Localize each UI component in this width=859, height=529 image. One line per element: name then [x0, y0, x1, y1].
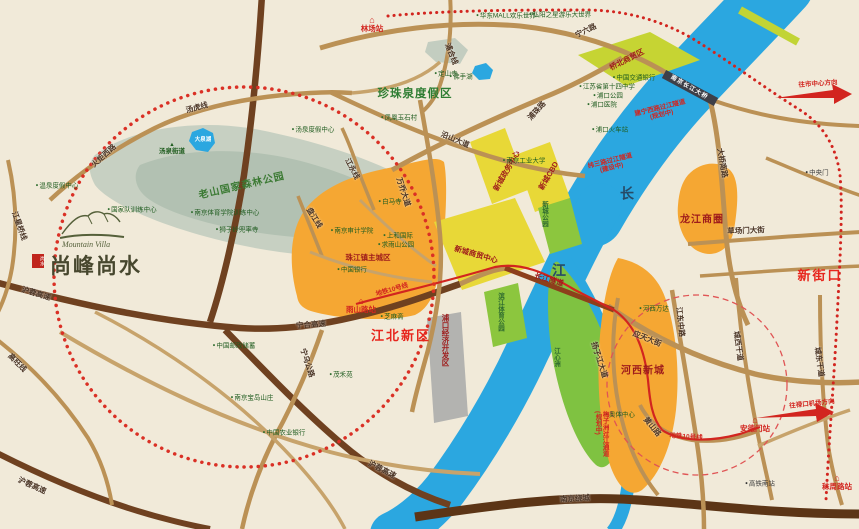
poi-dot-icon: ●: [745, 482, 748, 487]
road-hurong-2: 沪蓉高速: [367, 460, 397, 481]
poi-dot-icon: ●: [331, 229, 334, 234]
poi-zhimazhai: ●芝麻斋: [380, 313, 403, 320]
poi-shisi-zhongxue: ●江苏省第十四中学: [579, 83, 635, 90]
poi-dot-icon: ●: [231, 396, 234, 401]
road-yanshandadao: 沿山大道: [440, 130, 471, 149]
poi-dot-icon: ●: [292, 128, 295, 133]
region-xincheng-cbd: 新城CBD: [538, 160, 561, 191]
road-puzhulu: 浦珠路: [526, 100, 547, 122]
river-char-chang: 长: [620, 186, 634, 201]
poi-dot-icon: ●: [587, 103, 590, 108]
island-jiangxinzhou: 江心洲: [552, 347, 559, 367]
bridge-changjiang-daqiao: 南京长江大桥: [669, 75, 709, 102]
region-xincheng-shangmao: 新城商贸中心: [453, 245, 498, 265]
station-andemen: ⌂安德门站: [740, 416, 770, 433]
poi-tangquan-dujia: ●汤泉度假中心: [292, 126, 335, 133]
region-hexi-xincheng: 河西新城: [621, 367, 665, 378]
poi-foshouhu: ●佛手湖: [449, 73, 472, 80]
poi-dot-icon: ●: [613, 76, 616, 81]
road-panjiangxian: 盘江线: [305, 206, 324, 229]
poi-maoheyuan: ●茂禾苑: [329, 371, 352, 378]
poi-dot-icon: ●: [579, 85, 582, 90]
poi-zhongyangmen: ●中央门: [805, 169, 828, 176]
road-yangzijiangdadao: 扬子江大道: [589, 341, 608, 379]
poi-dot-icon: ●: [592, 128, 595, 133]
poi-shanghe-guoji: ●上和国际: [383, 232, 413, 239]
road-hurong-3: 沪蓉高速: [17, 476, 48, 496]
poi-dot-icon: ●: [383, 234, 386, 239]
region-longjiang: 龙江商圈: [680, 216, 724, 227]
poi-dot-icon: ●: [381, 116, 384, 121]
poi-dot-icon: ●: [378, 243, 381, 248]
crossing-jianning: 建宁西路过江隧道(规划中): [632, 98, 690, 126]
poi-jiaotong-yinhang: ●中国交通银行: [613, 74, 656, 81]
river-char-jiang: 江: [552, 263, 566, 278]
poi-hongyang: ●弘阳之星游乐大世界: [529, 11, 591, 18]
road-jiangdongzhonglu: 江东中路: [674, 307, 685, 338]
poi-dot-icon: ●: [191, 211, 194, 216]
road-huojuxilu: 火炬西路: [90, 143, 118, 169]
mountain-logo-icon: [58, 208, 128, 240]
region-laoshan-park: 老山国家森林公园: [198, 172, 286, 202]
road-tanghuxian: 汤虎线: [185, 101, 209, 115]
poi-qiuyushan-park: ●求雨山公园: [378, 241, 414, 248]
road-ninghe-expwy: 宁合高速: [296, 320, 326, 330]
poi-dot-icon: ●: [639, 307, 642, 312]
road-ningliulu: 宁六路: [574, 22, 598, 39]
poi-dot-icon: ●: [263, 431, 266, 436]
poi-dot-icon: ●: [380, 315, 383, 320]
project-logo: Mountain Villa 尚峰尚水 尚水: [24, 206, 164, 301]
poi-youzheng-chuxu: ●中国邮政储蓄: [213, 342, 256, 349]
poi-dot-icon: ●: [593, 94, 596, 99]
poi-pukou-yiyuan: ●浦口医院: [587, 101, 617, 108]
road-daqiaonanlu: 大桥南路: [715, 148, 728, 179]
poi-dot-icon: ●: [805, 171, 808, 176]
poi-wenquan-dujia: ●温泉度假中心: [36, 182, 79, 189]
poi-hexi-wanda: ●河西万达: [639, 305, 669, 312]
poi-dot-icon: ●: [503, 159, 506, 164]
poi-huadong-mall: ●华东MALL欢乐世界: [476, 12, 536, 19]
road-chengdonggandao: 城东干道: [813, 347, 825, 378]
poi-dot-icon: ●: [449, 75, 452, 80]
road-huangshanlu: 黄山路: [642, 416, 663, 438]
poi-dot-icon: ●: [434, 72, 437, 77]
logo-seal: 尚水: [32, 254, 44, 268]
arrow-label-city: 往市中心方向: [798, 79, 837, 89]
poi-dot-icon: ●: [529, 13, 532, 18]
region-qiaobei: 桥北商贸区: [608, 48, 645, 72]
poi-aoti-zhongxin: ●奥体中心: [605, 411, 635, 418]
road-jiangyongxian: 江永线: [343, 157, 361, 181]
poi-shiziling: ●狮子岭兜率寺: [216, 226, 259, 233]
poi-dot-icon: ●: [216, 228, 219, 233]
road-puhexian: 浦合线: [443, 42, 459, 66]
region-pukou-jingji: 浦口经济开发区: [441, 314, 449, 367]
road-nanjingraocheng: 南京绕城: [560, 494, 590, 504]
poi-yushicun: ●凤凰玉石村: [381, 114, 417, 121]
arrow-label-airport: 往禄口机场方向: [789, 398, 835, 410]
tourist-location-map: 宁六路浦珠路沿山大道浦合线汤虎线火炬西路江星桥线高旺线沪蓉高速沪蓉高速沪蓉高速宁…: [0, 0, 859, 529]
region-zhenzhuquan: 珍珠泉度假区: [378, 88, 453, 100]
park-binjiang: 滨江体育公园: [496, 293, 503, 332]
poi-shenji-xueyuan: ●南京审计学院: [331, 227, 374, 234]
crossing-weisan: 纬三路过江隧道(建设中): [584, 151, 638, 178]
crossing-meizizhou: 梅子洲过江通道(规划中): [594, 411, 608, 463]
station-linchang: ⌂林场站: [361, 16, 384, 33]
road-yingtiandajie: 应天大街: [632, 330, 663, 349]
poi-dot-icon: ●: [329, 373, 332, 378]
road-gaowangxian: 高旺线: [6, 352, 28, 374]
lake-daquanhu: 大泉湖: [195, 138, 212, 144]
poi-dot-icon: ●: [36, 184, 39, 189]
road-caochangmendajie: 草场门大街: [727, 226, 765, 235]
park-xincheng: 新城公园: [540, 201, 547, 227]
logo-chinese-name: 尚峰尚水: [50, 250, 142, 280]
poi-baodao-shanzhuang: ●南京宝岛山庄: [231, 394, 274, 401]
poi-dot-icon: ●: [213, 344, 216, 349]
poi-baimasi: ●白马寺: [378, 198, 401, 205]
metro-line10-east: 地铁10号线: [669, 432, 703, 441]
poi-gaotienanzhan: ●高铁南站: [745, 480, 775, 487]
poi-dot-icon: ●: [337, 268, 340, 273]
road-chengxigandao: 城西干道: [732, 331, 744, 362]
poi-dot-icon: ●: [476, 14, 479, 19]
metro-line10-west: 地铁10号线: [375, 282, 409, 298]
poi-nongye-yinhang: ●中国农业银行: [263, 429, 306, 436]
region-jiangbei-xinqu: 江北新区: [371, 329, 431, 343]
road-ningwu: 宁乌公路: [299, 347, 316, 378]
poi-zhongguo-yinhang: ●中国银行: [337, 266, 367, 273]
poi-dot-icon: ●: [378, 200, 381, 205]
station-mozhoulu: ⌂秣周路站: [822, 474, 852, 491]
poi-nanjing-gongye-daxue: ●南京工业大学: [503, 157, 546, 164]
region-xinjiekou: 新街口: [797, 269, 842, 283]
region-zhujiangzhen: 珠江镇主城区: [346, 254, 391, 262]
poi-pukou-huochezhan: ●浦口火车站: [592, 126, 628, 133]
town-tangquan-jiedao: ▲汤泉街道: [159, 143, 185, 155]
logo-english-name: Mountain Villa: [62, 240, 110, 249]
station-yushanlu: ⌂雨山路站: [346, 297, 376, 314]
poi-pukou-gongyuan: ●浦口公园: [593, 92, 623, 99]
region-xincheng-zhengwu: 新城政务中心: [492, 149, 522, 192]
poi-tiyuxueyuan: ●南京体育学院训练中心: [191, 209, 260, 216]
